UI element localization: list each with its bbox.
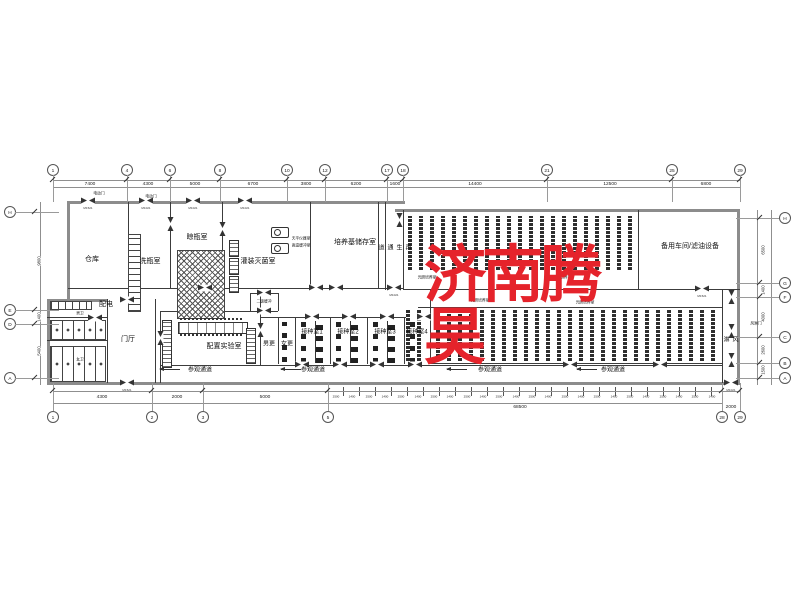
door-tag: M1021 xyxy=(726,389,735,392)
stools xyxy=(180,334,242,336)
room-label: 女卫 xyxy=(76,358,83,362)
dimension: 1400 xyxy=(513,396,520,399)
dimension: 1400 xyxy=(545,396,552,399)
grid-bubble: G xyxy=(779,277,791,289)
grid-bubble: 5 xyxy=(322,411,334,423)
grid-bubble: 8 xyxy=(214,164,226,176)
dimension: 1400 xyxy=(480,396,487,399)
grid-stem xyxy=(15,310,59,311)
door-symbol xyxy=(198,285,212,292)
dimension: 2000 xyxy=(171,395,183,400)
watermark: 济南腾昊 xyxy=(424,245,654,369)
autoclave xyxy=(229,276,239,293)
annotation: 电动门 xyxy=(145,195,156,199)
dimension: 2500 xyxy=(594,396,601,399)
door-symbol xyxy=(728,290,735,304)
door-symbol xyxy=(309,285,323,292)
dimension: 1400 xyxy=(415,396,422,399)
grid-bubble: F xyxy=(779,291,791,303)
wall xyxy=(395,209,740,212)
stools xyxy=(180,318,242,320)
room-label: 参观通道 xyxy=(301,368,325,375)
door-symbol xyxy=(329,285,343,292)
door-symbol: M1521 xyxy=(120,380,134,387)
floor-plan-sheet: 1 4 6 8 10 12 xyxy=(0,0,800,600)
dimension: 12500 xyxy=(603,182,618,187)
annotation: 风淋门 xyxy=(750,322,761,326)
dimension: 2500 xyxy=(366,396,373,399)
dimension: 2500 xyxy=(333,396,340,399)
room-label: 门厅 xyxy=(121,336,135,344)
grid-bubble: 18 xyxy=(397,164,409,176)
grid-bubble: A xyxy=(4,372,16,384)
grid-bubble: 25 xyxy=(666,164,678,176)
door-symbol: M1021 xyxy=(186,198,200,205)
room-label: 洗瓶室 xyxy=(140,258,161,266)
grid-bubble: 4 xyxy=(121,164,133,176)
door-tag: M1521 xyxy=(122,389,131,392)
door-symbol xyxy=(257,290,271,297)
door-tag: M1021 xyxy=(188,207,197,210)
door-tag: M1521 xyxy=(697,295,706,298)
room-label: 晾瓶室 xyxy=(187,234,208,242)
grid-bubble: 29 xyxy=(734,164,746,176)
dimension: 1400 xyxy=(578,396,585,399)
dimension: 68500 xyxy=(513,405,528,410)
door-symbol xyxy=(257,308,271,315)
toilet-stalls-men xyxy=(50,320,106,340)
dimension: 2500 xyxy=(529,396,536,399)
grid-bubble: C xyxy=(779,331,791,343)
autoclave xyxy=(229,258,239,275)
grid-bubble: 21 xyxy=(541,164,553,176)
autoclave xyxy=(229,240,239,257)
door-symbol: M1021 xyxy=(387,285,401,292)
room-label: 参观通道 xyxy=(188,368,212,375)
dimension: 1400 xyxy=(762,285,766,294)
dimension: 4300 xyxy=(142,182,154,187)
power-cabinets xyxy=(50,301,92,310)
route-arrow xyxy=(160,369,180,370)
grid-bubble: 1 xyxy=(47,411,59,423)
door-symbol xyxy=(305,314,319,321)
dimension: 1400 xyxy=(709,396,716,399)
inoculation-bench xyxy=(387,321,395,363)
dimension: 2500 xyxy=(692,396,699,399)
dimension: 2500 xyxy=(431,396,438,399)
wall xyxy=(47,382,740,385)
grid-bubble: H xyxy=(4,206,16,218)
toilet-stalls-women xyxy=(50,346,106,382)
annotation: 天平仪器室 xyxy=(292,237,311,241)
dimension: 1400 xyxy=(349,396,356,399)
grid-bubble: 29 xyxy=(734,411,746,423)
grid-bubble: 1 xyxy=(47,164,59,176)
dim-line xyxy=(53,403,722,404)
door-symbol xyxy=(219,222,226,236)
dimension: 1400 xyxy=(38,312,42,321)
inoculation-bench xyxy=(350,321,358,363)
route-arrow xyxy=(281,369,301,370)
lab-cabinet xyxy=(246,328,256,364)
room-label: 接种室3 xyxy=(374,330,395,337)
door-symbol xyxy=(396,213,403,227)
door-symbol: M1521 xyxy=(695,286,709,293)
door-symbol xyxy=(380,314,394,321)
wall xyxy=(367,317,368,364)
dimension: 6700 xyxy=(247,182,259,187)
room-label: 二级缓冲 xyxy=(257,300,272,304)
dimension: 1400 xyxy=(643,396,650,399)
grid-stem xyxy=(15,212,59,213)
dimension: 1400 xyxy=(611,396,618,399)
grid-bubble: A xyxy=(779,372,791,384)
wall xyxy=(295,317,296,364)
dim-line xyxy=(53,391,740,392)
wall xyxy=(278,293,279,311)
door-symbol xyxy=(167,217,174,231)
door-symbol: M1521 xyxy=(81,198,95,205)
door-symbol xyxy=(370,362,384,369)
dimension: 5000 xyxy=(259,395,271,400)
grid-bubble: 17 xyxy=(381,164,393,176)
door-symbol xyxy=(333,362,347,369)
dim-line xyxy=(40,202,41,385)
grid-bubble: 10 xyxy=(281,164,293,176)
room-label: 仓库 xyxy=(85,256,99,264)
dimension: 4300 xyxy=(96,395,108,400)
wall xyxy=(68,201,405,204)
dimension: 1500 xyxy=(762,365,766,374)
grid-bubble: E xyxy=(4,304,16,316)
dimension: 2500 xyxy=(660,396,667,399)
dimension: 2600 xyxy=(762,345,766,354)
inoculation-bench xyxy=(301,321,306,363)
route-arrow xyxy=(577,369,597,370)
room-label: 培养基储存室 xyxy=(334,239,376,247)
room-label: 接种室1 xyxy=(301,330,322,337)
dimension: 2500 xyxy=(627,396,634,399)
door-symbol xyxy=(728,353,735,367)
dimension: 2500 xyxy=(398,396,405,399)
door-tag: M1521 xyxy=(83,207,92,210)
grid-bubble: 2 xyxy=(146,411,158,423)
lab-cabinet xyxy=(162,320,172,368)
grid-bubble: 12 xyxy=(319,164,331,176)
door-symbol xyxy=(408,362,422,369)
inoculation-bench xyxy=(410,321,415,363)
door-symbol xyxy=(120,297,134,304)
dimension: 3800 xyxy=(300,182,312,187)
wall xyxy=(250,293,251,311)
dimension: 2500 xyxy=(464,396,471,399)
dimension: 6200 xyxy=(350,182,362,187)
room-label: 男更 xyxy=(263,342,275,349)
annotation: 高温缓冲室 xyxy=(292,244,311,248)
dimension: 5400 xyxy=(38,346,42,355)
wall xyxy=(107,299,108,383)
grid-bubble: H xyxy=(779,212,791,224)
room-label: 备用车间/滤油设备 xyxy=(661,243,719,251)
door-symbol: M1021 xyxy=(238,198,252,205)
dimension: 1400 xyxy=(382,396,389,399)
dimension: 1400 xyxy=(676,396,683,399)
clean-bench xyxy=(271,243,289,254)
wall xyxy=(330,317,331,364)
inoculation-bench xyxy=(336,321,341,363)
door-symbol xyxy=(157,331,164,345)
room-label: 配置实验室 xyxy=(207,343,242,351)
wall xyxy=(278,317,279,364)
door-tag: M1021 xyxy=(141,207,150,210)
dimension: 5000 xyxy=(189,182,201,187)
room-label: 灌装灭菌室 xyxy=(241,258,276,266)
dim-line xyxy=(53,187,740,188)
door-symbol xyxy=(88,315,102,322)
room-label: 男卫 xyxy=(76,312,83,316)
wall xyxy=(67,201,70,302)
dimension: 2500 xyxy=(562,396,569,399)
dimension: 9800 xyxy=(38,256,42,265)
clean-bench xyxy=(271,227,289,238)
door-tag: M1021 xyxy=(389,294,398,297)
grid-bubble: 3 xyxy=(197,411,209,423)
room-label: 接种室2 xyxy=(337,330,358,337)
door-symbol xyxy=(342,314,356,321)
grid-bubble: D xyxy=(4,318,16,330)
dimension: 2500 xyxy=(496,396,503,399)
inoculation-bench xyxy=(373,321,378,363)
dimension: 4000 xyxy=(762,312,766,321)
grid-bubble: 28 xyxy=(716,411,728,423)
inoculation-bench xyxy=(315,321,323,363)
wall xyxy=(170,202,171,289)
dimension: 14400 xyxy=(468,182,483,187)
wall xyxy=(47,340,108,341)
corridor-label: 再生通道 xyxy=(376,244,412,252)
dimension: 1400 xyxy=(447,396,454,399)
wall xyxy=(160,311,161,383)
wall xyxy=(404,317,405,364)
dimension: 6800 xyxy=(700,182,712,187)
dimension: 2000 xyxy=(725,405,737,410)
room-label: 配电 xyxy=(99,301,113,309)
room-label: 女更 xyxy=(281,342,293,349)
grid-bubble: 6 xyxy=(164,164,176,176)
lab-bench xyxy=(178,322,248,334)
door-symbol xyxy=(653,362,667,369)
dimension: 6500 xyxy=(762,245,766,254)
grid-bubble: B xyxy=(779,357,791,369)
door-symbol: M1021 xyxy=(724,380,738,387)
door-tag: M1021 xyxy=(240,207,249,210)
dimension: 1600 xyxy=(389,182,401,187)
grid-stem xyxy=(15,378,59,379)
dimension: 7400 xyxy=(84,182,96,187)
grid-stem xyxy=(15,324,59,325)
door-symbol xyxy=(257,323,264,337)
annotation: 电动门 xyxy=(93,192,104,196)
